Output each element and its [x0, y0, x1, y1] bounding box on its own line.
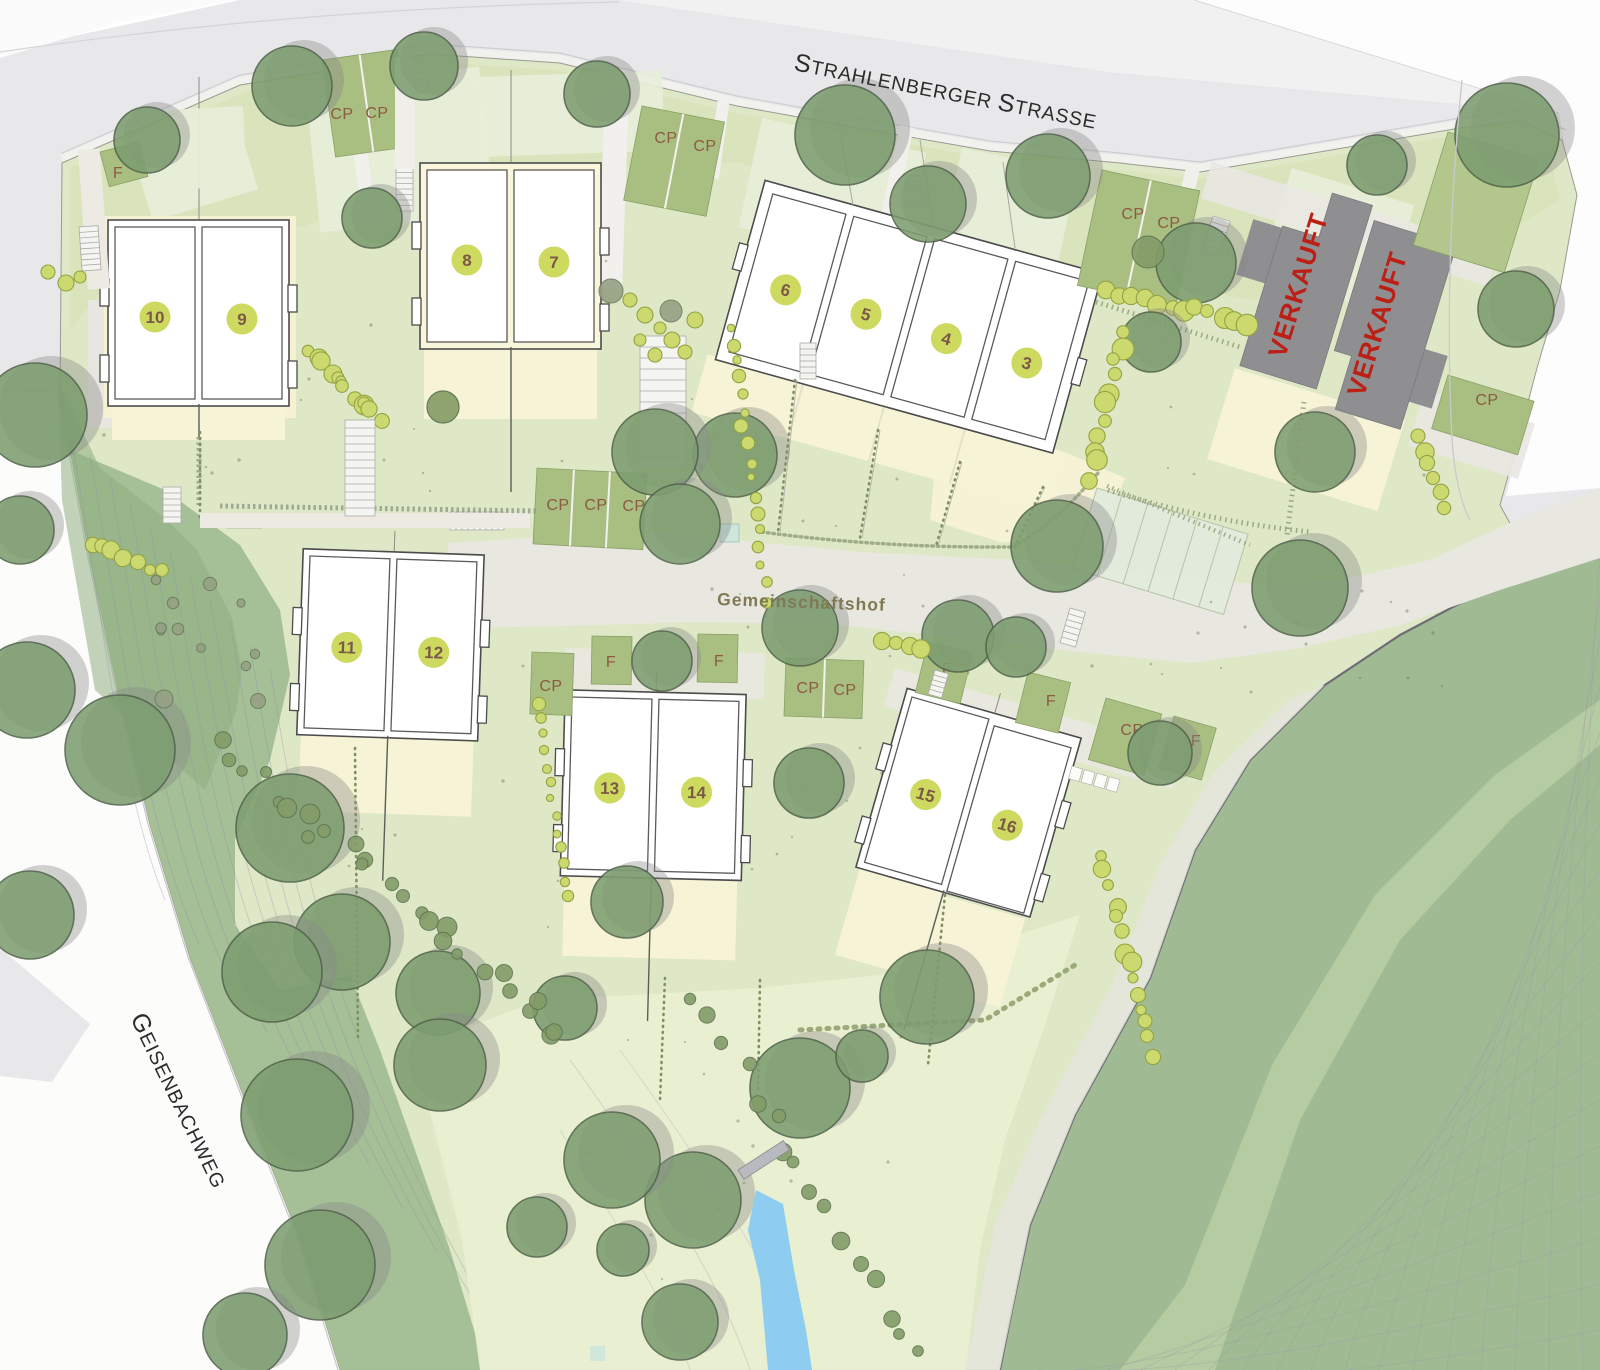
- svg-text:CP: CP: [654, 130, 677, 147]
- svg-text:CP: CP: [330, 106, 353, 123]
- svg-text:CP: CP: [365, 105, 388, 122]
- svg-text:CP: CP: [539, 678, 562, 695]
- svg-text:CP: CP: [796, 680, 819, 697]
- svg-text:F: F: [113, 165, 123, 182]
- svg-text:14: 14: [687, 783, 707, 803]
- svg-text:12: 12: [424, 643, 444, 663]
- svg-text:CP: CP: [584, 497, 607, 514]
- svg-text:8: 8: [462, 251, 471, 270]
- svg-text:CP: CP: [693, 138, 716, 155]
- svg-text:F: F: [1046, 693, 1056, 710]
- svg-text:CP: CP: [833, 682, 856, 699]
- svg-text:CP: CP: [1475, 392, 1498, 409]
- svg-text:F: F: [714, 653, 724, 670]
- svg-text:11: 11: [337, 638, 356, 658]
- svg-text:CP: CP: [546, 497, 569, 514]
- svg-text:CP: CP: [1121, 206, 1144, 223]
- svg-text:F: F: [606, 654, 616, 671]
- svg-text:10: 10: [146, 308, 165, 327]
- svg-text:9: 9: [237, 310, 246, 329]
- svg-text:7: 7: [549, 253, 558, 272]
- svg-text:13: 13: [600, 779, 619, 798]
